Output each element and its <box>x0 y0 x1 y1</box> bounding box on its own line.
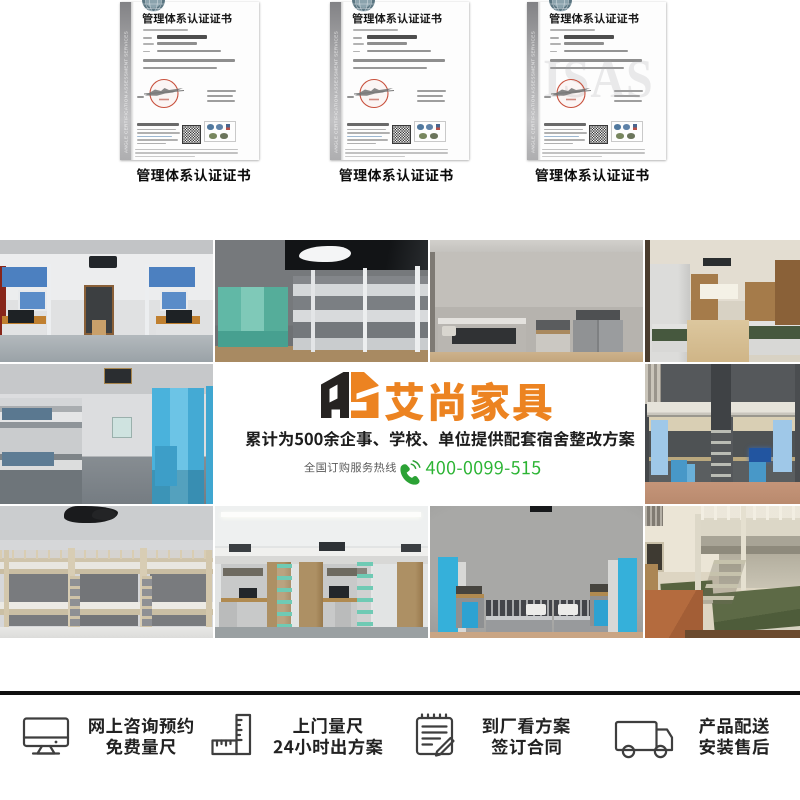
svg-text:ANGLE CERTIFICATION ASSESSMENT: ANGLE CERTIFICATION ASSESSMENT SERVICES <box>531 31 536 153</box>
svg-text:ANGLE CERTIFICATION ASSESSMENT: ANGLE CERTIFICATION ASSESSMENT SERVICES <box>334 31 339 153</box>
svg-text:ANGLE CERTIFICATION ASSESSMENT: ANGLE CERTIFICATION ASSESSMENT SERVICES <box>124 31 129 153</box>
